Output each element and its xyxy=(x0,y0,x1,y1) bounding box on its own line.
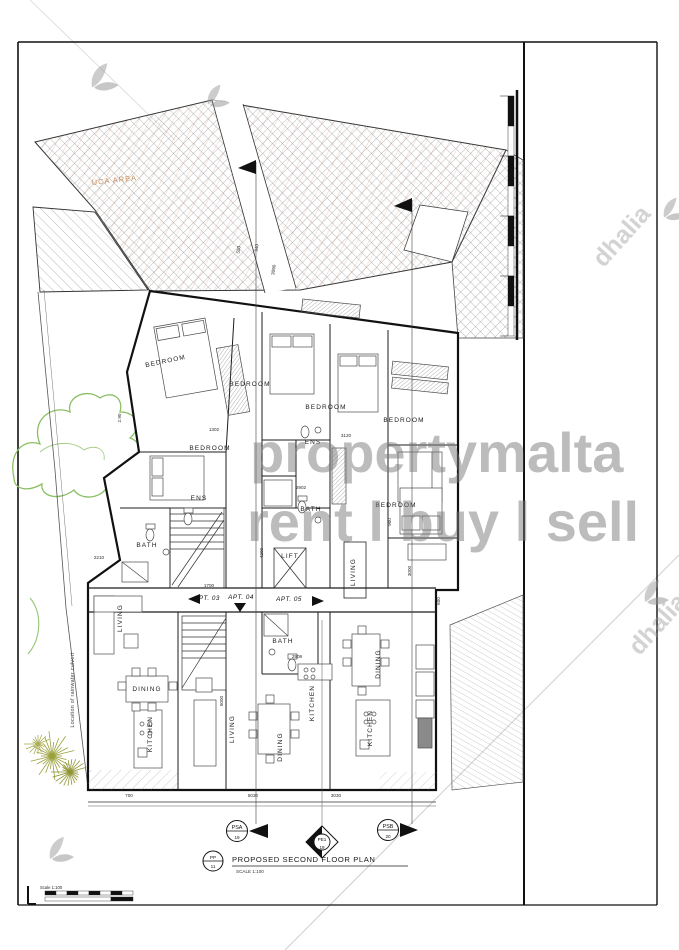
room-label: LIVING xyxy=(117,604,124,632)
plan-ref-number: 11 xyxy=(211,864,216,869)
room-label: BEDROOM xyxy=(189,445,230,452)
culvert-note: Location of rainwater culvert xyxy=(70,652,76,727)
room-label: KITCHEN xyxy=(147,716,154,752)
drawing-sheet: PSA 19 PE1 19 PSB 20 PP 11 PROPOSED SECO… xyxy=(0,0,679,950)
dimension-label: 900 xyxy=(387,518,392,526)
title-block: PP 11 PROPOSED SECOND FLOOR PLAN SCALE 1… xyxy=(203,851,408,874)
apartment-label: APT. 03 xyxy=(193,595,220,602)
roof-hatch-region xyxy=(33,100,523,338)
room-label: BATH xyxy=(136,542,157,549)
marker-psb-number: 20 xyxy=(385,834,391,839)
section-arrow-icon xyxy=(249,824,268,838)
dimension-label: 3120 xyxy=(341,433,352,438)
room-label: BEDROOM xyxy=(305,404,346,411)
dimension-label: 2.90 xyxy=(117,413,122,422)
room-label: DINING xyxy=(132,686,161,693)
dimension-label: 2908 xyxy=(292,654,303,659)
room-label: DINING xyxy=(375,649,382,678)
dimension-label: 1302 xyxy=(209,427,220,432)
room-label: ENS xyxy=(305,439,322,446)
yard-hatch xyxy=(450,595,523,790)
room-label: ENS xyxy=(191,495,208,502)
marker-pe1-label: PE1 xyxy=(318,837,327,842)
scale-bar: Scale 1:100 xyxy=(28,885,133,904)
marker-psa-label: PSA xyxy=(232,825,243,831)
plan-ref-top: PP xyxy=(210,855,216,860)
marker-psb-label: PSB xyxy=(383,824,394,830)
plan-scale: SCALE 1:100 xyxy=(236,869,264,874)
floor-plan-drawing: PSA 19 PE1 19 PSB 20 PP 11 PROPOSED SECO… xyxy=(0,0,679,950)
room-label: BEDROOM xyxy=(229,381,270,388)
room-label: DINING xyxy=(277,732,284,761)
room-label: LIFT xyxy=(281,553,299,560)
room-label: KITCHEN xyxy=(309,685,316,721)
site-boundary xyxy=(38,290,88,788)
plan-title: PROPOSED SECOND FLOOR PLAN xyxy=(232,855,375,864)
scale-bar-label: Scale 1:100 xyxy=(40,885,63,890)
room-label: KITCHEN xyxy=(367,710,374,746)
dimension-label: 2210 xyxy=(94,555,105,560)
dimension-label: 3000 xyxy=(407,565,412,576)
dimension-label: 700 xyxy=(125,793,133,798)
dimension-label: 5030 xyxy=(248,793,259,798)
dimension-label: 5000 xyxy=(219,695,224,706)
tree-symbol xyxy=(24,731,86,786)
dimension-label: 3030 xyxy=(331,793,342,798)
dimension-label: 600 xyxy=(436,597,441,605)
apartment-label: APT. 05 xyxy=(275,596,302,603)
room-label: BEDROOM xyxy=(383,417,424,424)
marker-pe1-number: 19 xyxy=(319,845,325,850)
dimension-label: 4200 xyxy=(259,547,264,558)
marker-psa-number: 19 xyxy=(234,835,240,840)
room-label: LIVING xyxy=(229,715,236,743)
room-label: BATH xyxy=(272,638,293,645)
room-label: BEDROOM xyxy=(375,502,416,509)
room-label: BATH xyxy=(300,506,321,513)
dimension-label: 2902 xyxy=(296,485,307,490)
dimension-label: 1700 xyxy=(204,583,215,588)
room-label: LIVING xyxy=(350,558,357,586)
apartment-label: APT. 04 xyxy=(227,594,254,601)
